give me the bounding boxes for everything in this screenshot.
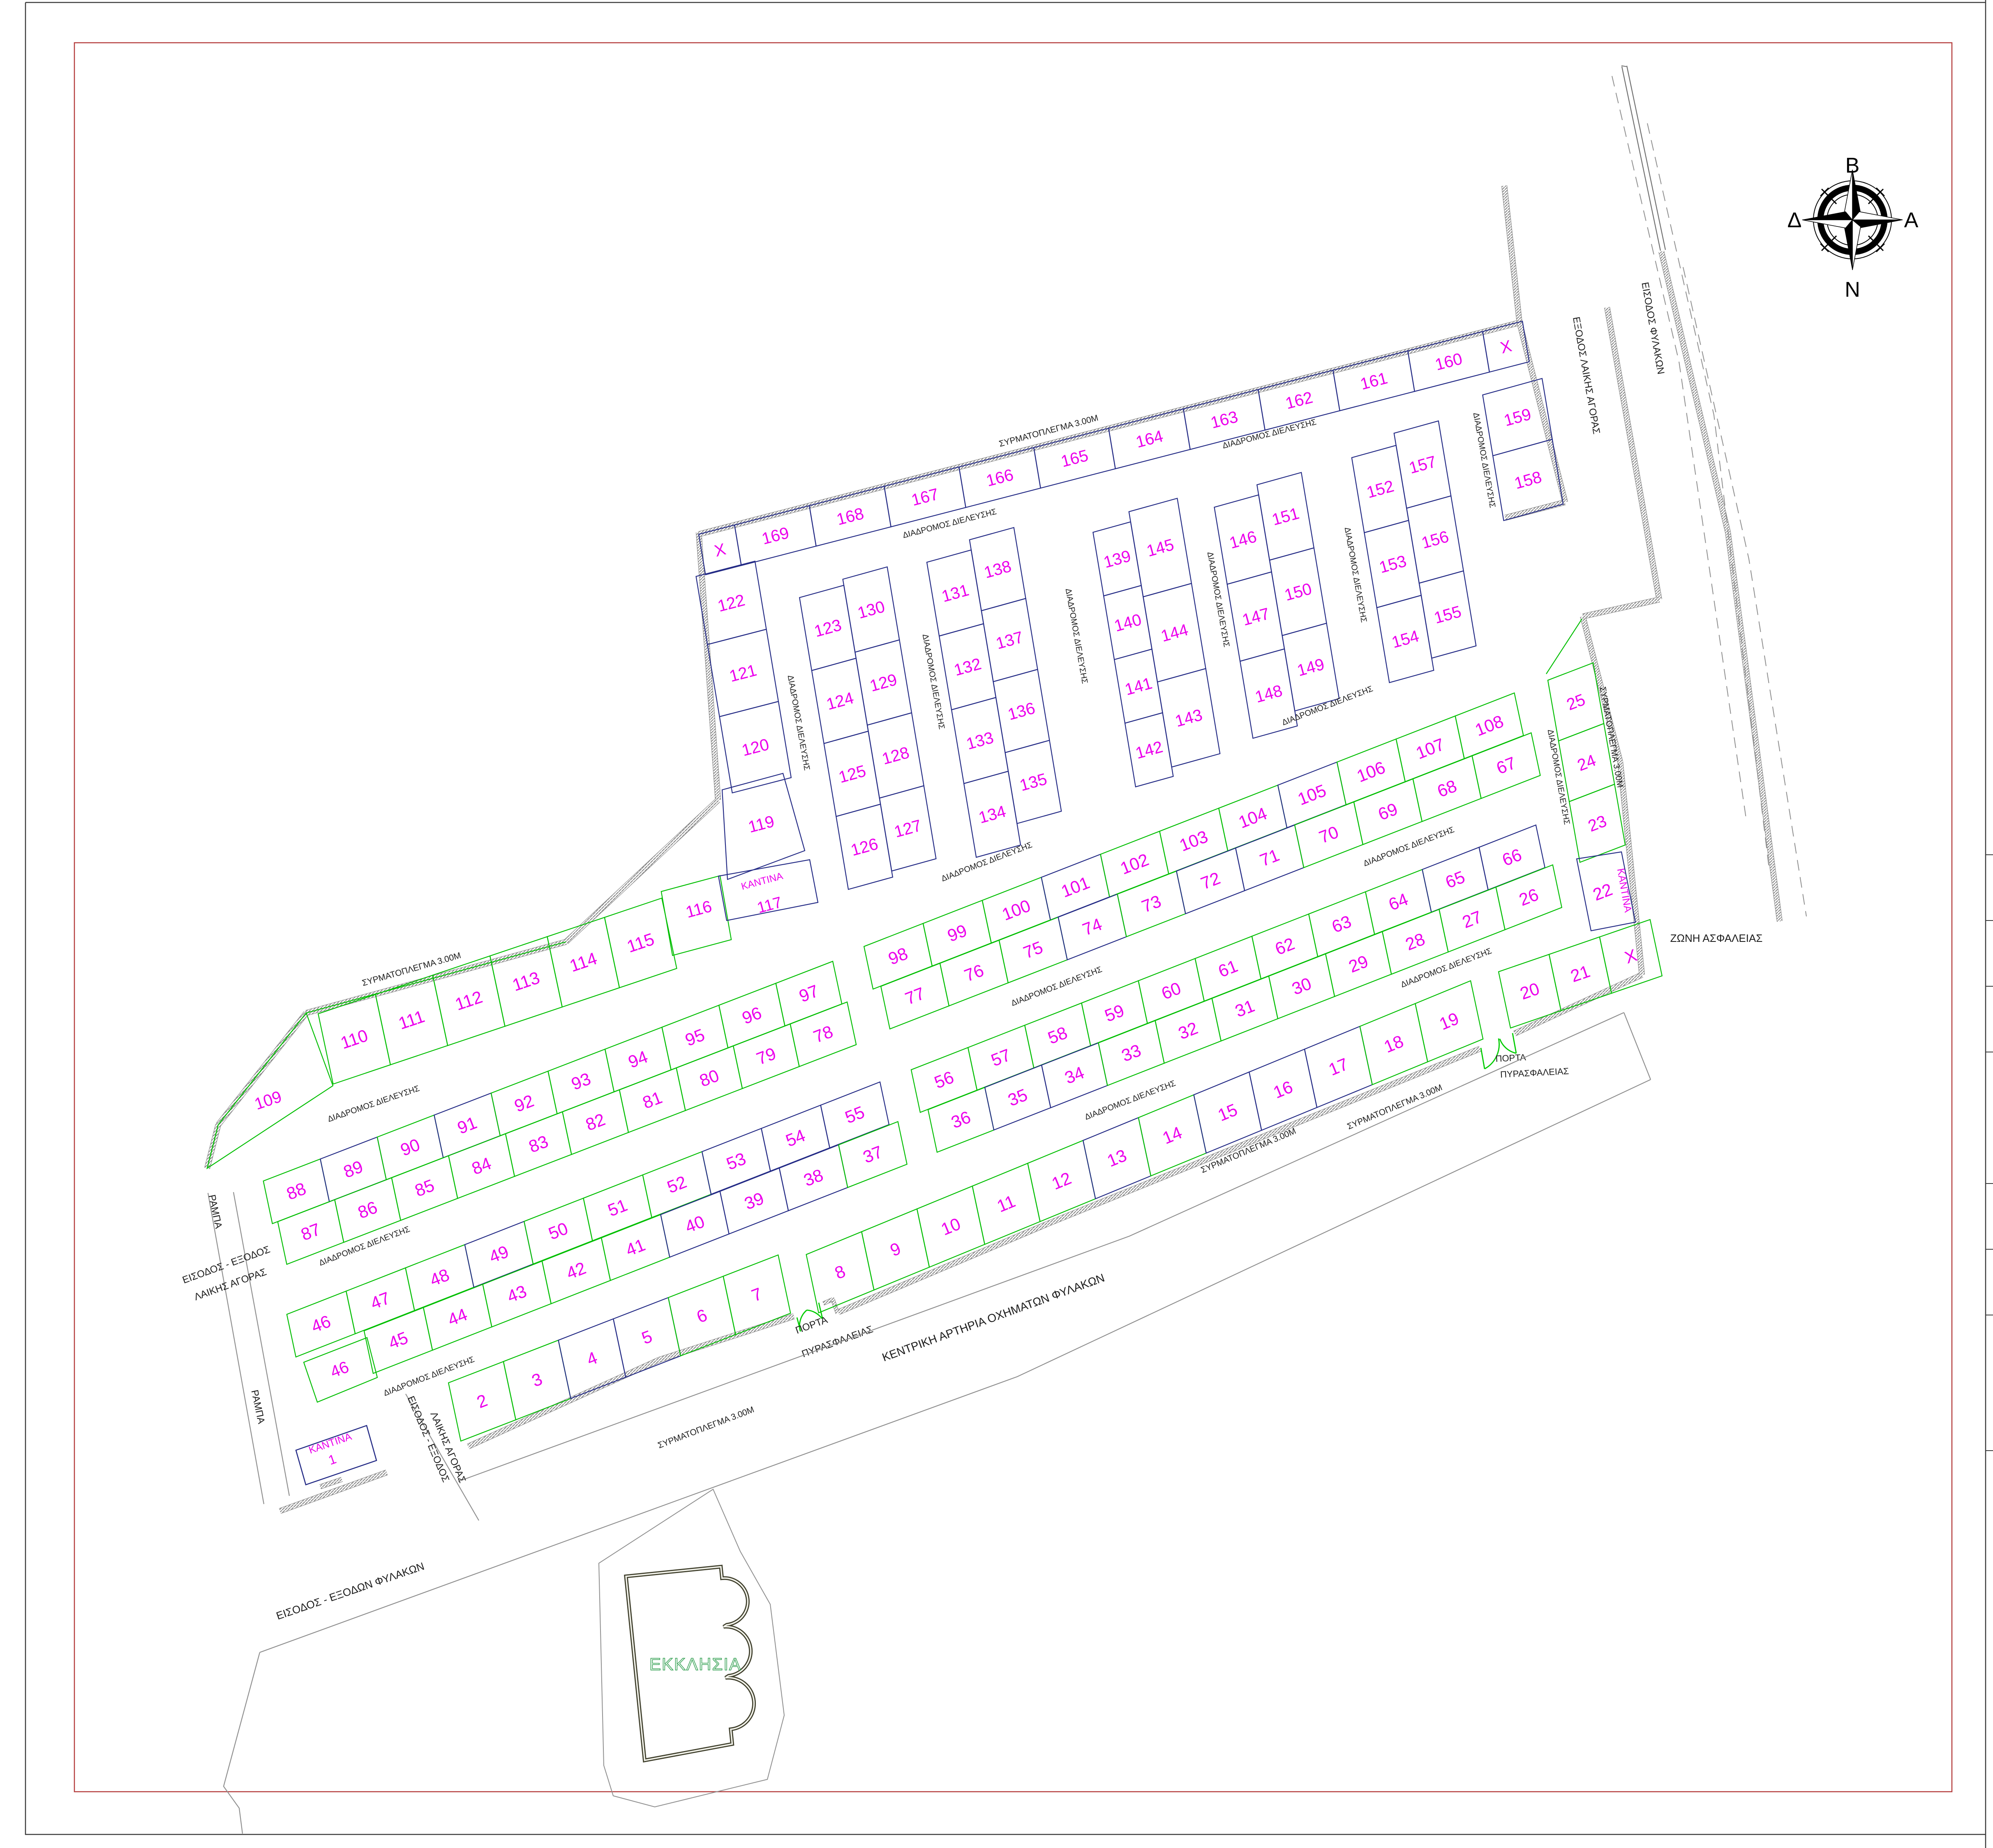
svg-text:B: B <box>1845 154 1860 178</box>
svg-text:A: A <box>1904 208 1919 232</box>
svg-text:ΠΟΡΤΑ: ΠΟΡΤΑ <box>1495 1052 1527 1064</box>
svg-text:ΖΩΝΗ ΑΣΦΑΛΕΙΑΣ: ΖΩΝΗ ΑΣΦΑΛΕΙΑΣ <box>1670 932 1763 944</box>
svg-text:Δ: Δ <box>1787 208 1802 232</box>
svg-text:N: N <box>1845 278 1860 302</box>
svg-text:ΕΚΚΛΗΣΙΑ: ΕΚΚΛΗΣΙΑ <box>649 1654 741 1674</box>
